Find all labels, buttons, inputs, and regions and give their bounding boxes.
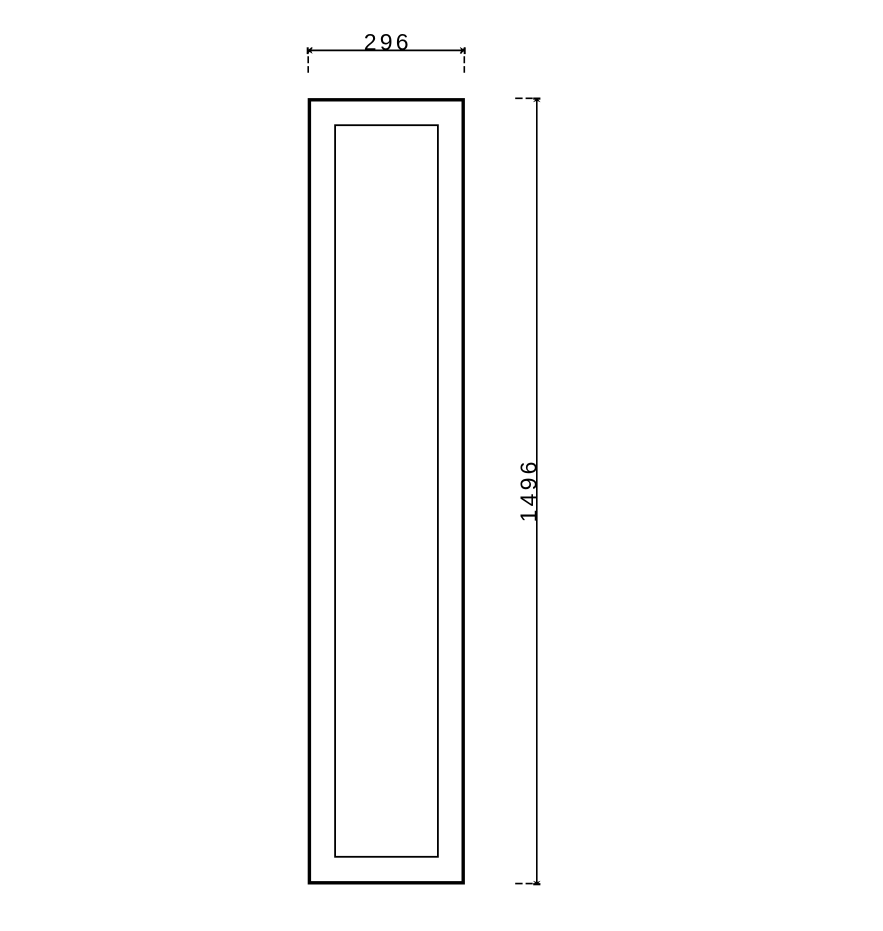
- svg-text:1496: 1496: [515, 458, 541, 522]
- svg-text:296: 296: [364, 29, 412, 55]
